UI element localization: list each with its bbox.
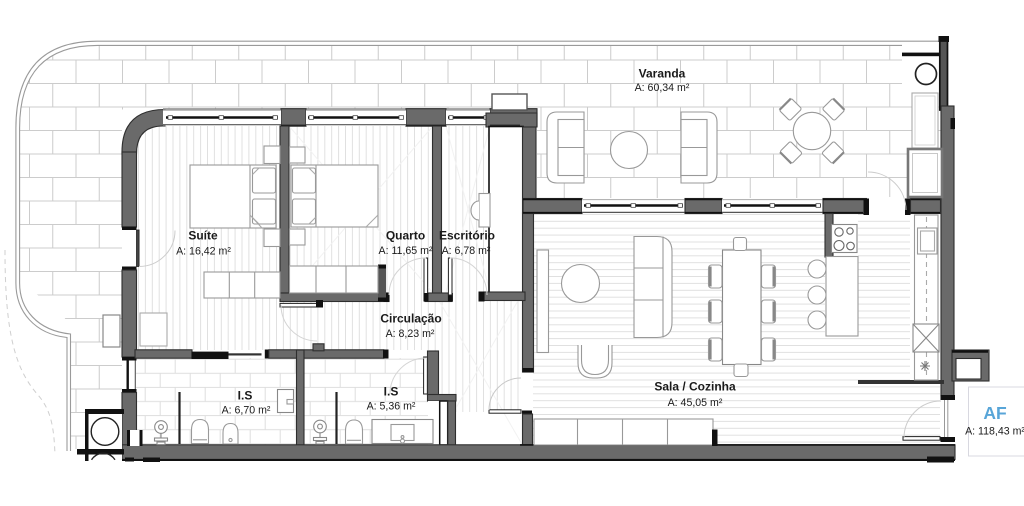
svg-text:I.S: I.S: [384, 385, 399, 399]
svg-text:A: 5,36 m²: A: 5,36 m²: [367, 401, 416, 413]
svg-text:A: 6,70 m²: A: 6,70 m²: [222, 405, 271, 417]
svg-text:Escritório: Escritório: [439, 229, 495, 243]
svg-text:I.S: I.S: [238, 389, 253, 403]
svg-text:A: 11,65 m²: A: 11,65 m²: [379, 245, 433, 257]
svg-text:A: 118,43 m²: A: 118,43 m²: [965, 426, 1024, 438]
svg-text:Circulação: Circulação: [380, 312, 441, 326]
svg-text:Quarto: Quarto: [386, 229, 425, 243]
svg-text:Varanda: Varanda: [639, 66, 686, 80]
svg-text:A: 60,34 m²: A: 60,34 m²: [635, 82, 690, 94]
svg-text:A: 6,78 m²: A: 6,78 m²: [442, 245, 491, 257]
svg-text:A: 45,05 m²: A: 45,05 m²: [668, 397, 723, 409]
svg-text:Sala / Cozinha: Sala / Cozinha: [654, 380, 736, 394]
svg-text:Suíte: Suíte: [188, 229, 218, 243]
svg-text:A: 8,23 m²: A: 8,23 m²: [386, 328, 435, 340]
svg-text:A: 16,42 m²: A: 16,42 m²: [176, 246, 231, 258]
svg-text:AF: AF: [983, 403, 1007, 423]
